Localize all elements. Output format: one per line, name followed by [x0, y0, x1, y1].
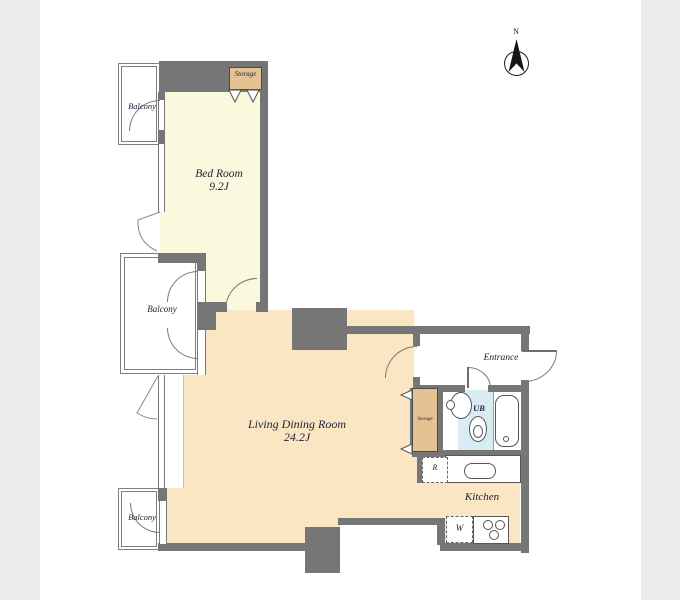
compass-north-label: N: [506, 28, 526, 37]
floor-plan: N Storage Balcony Bed Room 9.2J Balcony …: [0, 0, 680, 600]
living-size: 24.2J: [227, 431, 367, 444]
bedroom-name: Bed Room: [160, 168, 278, 181]
storage-chevron-top-icon: [401, 390, 412, 400]
compass-north-arrow-icon: [509, 39, 525, 72]
balcony-bottom-label: Balcony: [112, 513, 172, 523]
living-name: Living Dining Room: [227, 418, 367, 431]
balcony-middle-label: Balcony: [132, 304, 192, 314]
living-casement-window-icon: [137, 376, 158, 419]
hall-storage-label: Storage: [412, 417, 438, 423]
bedroom-label: Bed Room 9.2J: [160, 168, 278, 194]
symbol-overlay: [0, 0, 680, 600]
entrance-label: Entrance: [461, 353, 541, 364]
bedroom-size: 9.2J: [160, 181, 278, 194]
unit-bath-label: UB: [459, 404, 499, 414]
closet-chevron-left-icon: [229, 90, 241, 102]
bedroom-casement-window-icon: [138, 212, 160, 251]
closet-chevron-right-icon: [247, 90, 259, 102]
bedroom-storage-label: Storage: [229, 71, 262, 79]
living-label: Living Dining Room 24.2J: [227, 418, 367, 445]
washer-label: W: [446, 523, 473, 533]
balcony-top-label: Balcony: [112, 102, 172, 112]
kitchen-label: Kitchen: [442, 491, 522, 503]
storage-chevron-bottom-icon: [401, 444, 412, 454]
refrigerator-label: R: [422, 464, 448, 473]
